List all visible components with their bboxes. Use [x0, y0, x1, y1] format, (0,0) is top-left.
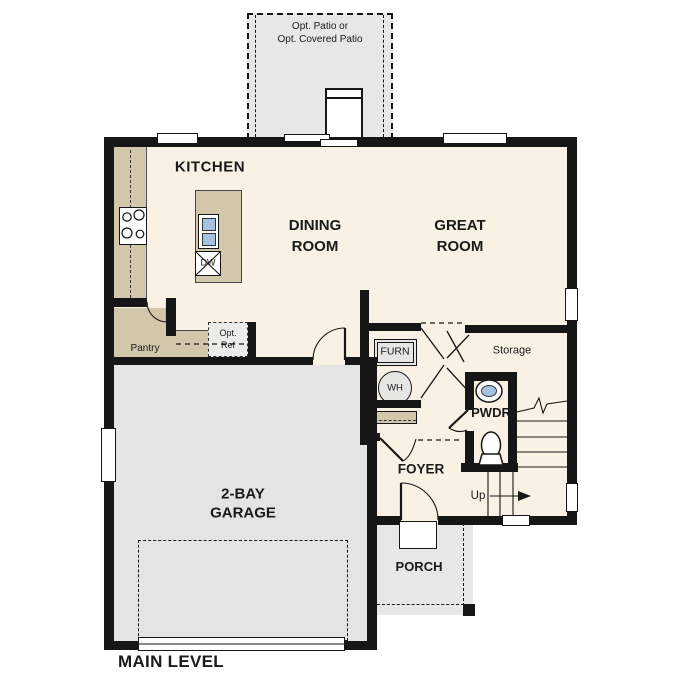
plan-level-title: MAIN LEVEL — [118, 650, 224, 674]
pantry-door — [147, 302, 167, 322]
opt-ref-label: Opt. Ref — [219, 327, 236, 351]
hall-closet-doors — [421, 328, 469, 398]
front-door — [401, 483, 438, 520]
stairs-up-label: Up — [471, 488, 486, 504]
range-burners-icon — [122, 210, 144, 238]
storage-label: Storage — [493, 343, 532, 358]
garage-entry-door — [313, 328, 345, 360]
floor-plan: KITCHEN DINING ROOM GREAT ROOM 2-BAY GAR… — [0, 0, 687, 687]
dishwasher-label: DW — [201, 257, 216, 270]
plan-linework — [0, 0, 687, 687]
powder-sink-icon — [476, 380, 502, 402]
kitchen-label: KITCHEN — [175, 157, 245, 178]
stair-break-line — [517, 398, 567, 413]
patio-label: Opt. Patio or Opt. Covered Patio — [277, 20, 362, 46]
toilet-icon — [479, 432, 503, 465]
powder-door — [449, 410, 468, 432]
porch-label: PORCH — [396, 558, 443, 576]
dining-room-label: DINING ROOM — [289, 215, 342, 257]
furnace-label: FURN — [380, 345, 409, 360]
garage-label: 2-BAY GARAGE — [210, 485, 276, 523]
powder-label: PWDR — [471, 404, 511, 422]
water-heater-label: WH — [387, 381, 403, 394]
coat-closet-door — [380, 438, 416, 461]
great-room-label: GREAT ROOM — [434, 215, 485, 257]
foyer-label: FOYER — [398, 461, 445, 480]
pantry-label: Pantry — [131, 342, 160, 356]
stairs-up-arrow — [490, 491, 531, 501]
